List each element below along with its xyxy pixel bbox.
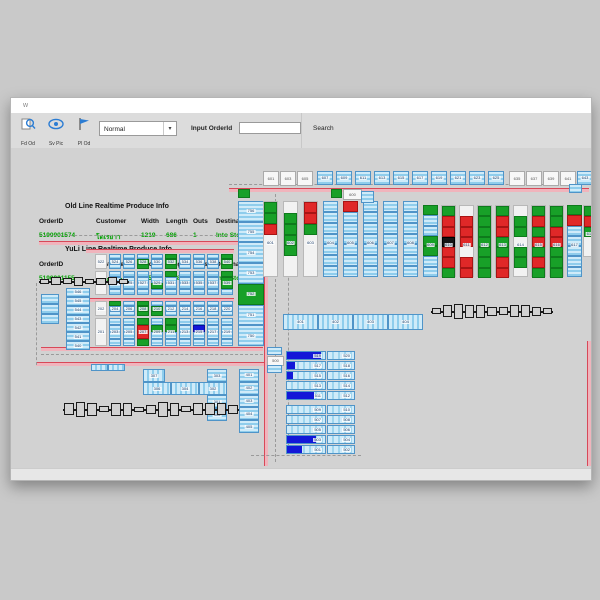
lane-left-label: 503 [313,438,322,442]
rack-cell [343,255,358,266]
lane-left-label: 505 [313,428,322,432]
machine-drawing [431,301,553,321]
rack-cell [137,289,149,295]
station-box: 611 [355,171,371,185]
machine-segment [74,277,83,286]
rack-cell [383,244,398,255]
bank-column: 530 [151,254,163,269]
rack-cell [151,264,163,269]
strip-cell: 541 [66,332,90,341]
rack-cell [567,215,582,225]
bank-column-label: 212 [167,307,176,311]
rack-cell [207,311,219,316]
lane-left-cell: 513 [286,381,326,390]
machine-segment [123,403,133,416]
factory-map: 6016036056076096116136156176196216236256… [11,148,591,468]
lane-right-label: 516 [342,374,351,378]
bank-column-label: 210 [153,307,162,311]
rack-cell [179,264,191,269]
rack-column: 603 [303,201,318,277]
lane-left-label: 513 [313,384,322,388]
strip-cell: 404 [388,314,423,330]
search-button[interactable]: Search [313,125,334,132]
map-area: Old Line Realtime Produce Info OrderID C… [11,148,591,468]
lane-left-cell: 503 [286,435,326,444]
rack-cell [532,206,545,216]
rack-cell [514,257,527,267]
machine-segment [85,279,94,284]
machine-segment [205,403,215,415]
bank-column: 216 [193,301,205,316]
rack-cell [165,289,177,295]
rack-strip: 401402403404 [283,314,423,330]
strip-cell-label: 302 [209,387,218,391]
lane-row: 519520 [286,351,355,360]
bank-column-label: 539 [223,281,232,285]
mode-select[interactable]: Normal ▾ [99,121,177,136]
lane-right-cell: 516 [327,371,355,380]
bank-column-label: 528 [139,260,148,264]
rack-cell-label: 752 [247,292,256,296]
rack-cell [221,339,233,346]
machine-segment [119,279,128,284]
station-box: 619 [431,171,447,185]
zone-dashed-line [39,235,263,236]
bank-column: 217 [207,318,219,346]
rack-cell [343,266,358,277]
machine-segment [181,406,191,412]
mode-select-value: Normal [104,126,125,133]
rack-cell [442,247,455,257]
machine-segment [134,407,144,412]
find-order-icon [20,117,36,131]
rack-cell [264,224,277,235]
bank-column: 201 [95,318,107,346]
strip-cell-label: 401 [296,320,305,324]
bank-column-label: 208 [139,307,148,311]
strip-cell [41,294,59,304]
rack-cell [304,224,317,235]
rack-strip: 307 [143,369,165,382]
rack-cell [193,264,205,269]
lane-right-cell: 514 [327,381,355,390]
station-box-label: 609 [340,176,349,180]
strip-cell [41,304,59,314]
save-pic-button[interactable]: Sv Pic [43,116,69,144]
rack-cell [478,268,491,278]
machine-segment [76,402,86,417]
machine-segment [111,403,121,416]
rack-cell: 753 [238,263,264,284]
station-box: 609 [336,171,352,185]
strip-cell: 403 [239,395,259,408]
bank-column-label: 206 [125,307,134,311]
rack-cell [383,266,398,277]
rack-cell-label: 754 [247,251,256,255]
rack-column: 614 [513,205,528,277]
lane-fill-bar [287,436,316,443]
machine-segment [454,304,463,319]
rack-cell [423,256,438,266]
rack-cell [323,255,338,266]
eye-icon [48,117,64,131]
rack-cell [363,255,378,266]
rack-cell: 750 [238,325,264,346]
rack-cell [532,227,545,237]
rack-cell-label: 750 [247,334,256,338]
strip-cell: 544 [66,306,90,315]
lane-right-cell: 510 [327,405,355,414]
rack-cell [550,216,563,226]
rack-cell [193,311,205,316]
strip-cell: 402 [239,382,259,395]
lane-fill-bar [287,446,302,453]
rack-cell [478,257,491,267]
lane-right-label: 510 [342,408,351,412]
station-box: 615 [393,171,409,185]
bank-column-label: 203 [111,330,120,334]
rack-cell [460,216,473,226]
lane-fill-bar [287,372,293,379]
bank-column: 526 [123,254,135,269]
rack-column: 609 [423,205,438,277]
strip-cell [91,364,108,371]
rack-cell [343,244,358,255]
rack-column-label: 603 [306,241,315,245]
rack-cell [323,244,338,255]
rack-cell [532,268,545,278]
conveyor-line [229,188,589,192]
bank-column: 212 [165,301,177,316]
rack-column-label: 606 [366,241,375,245]
rack-cell [567,226,582,236]
station-box: 601 [263,171,279,186]
bank-column: 206 [123,301,135,316]
bank-column: 536 [193,254,205,269]
strip-cell: 306 [143,382,171,395]
rack-column-label: 610 [444,243,453,247]
rack-cell [550,227,563,237]
rack-cell [123,264,135,269]
machine-segment [64,403,74,415]
rack-strip: 401402403404405 [239,369,259,433]
station-box-label: 611 [359,176,367,180]
rack-cell [323,266,338,277]
rack-cell [567,205,582,215]
zone-dashed-line [251,455,361,456]
bank-column: 533 [179,271,191,295]
lane-row: 511512 [286,391,355,400]
strip-cell-label: 405 [245,425,254,429]
strip-cell-label: 403 [245,399,254,403]
bank-column: 202 [95,301,107,316]
toolbar: Fd Od Sv Pic Pl Od Normal ▾ Input OrderI… [11,113,591,149]
machine-segment [217,403,227,415]
chevron-down-icon: ▾ [163,122,176,135]
conveyor-line [36,362,264,366]
lane-left-label: 509 [313,408,322,412]
bank-column: 204 [109,301,121,316]
rack-column-label: 616 [552,243,561,247]
machine-segment [51,277,60,285]
lane-right-label: 514 [342,384,351,388]
rack-column: 601 [263,201,278,277]
machine-segment [443,305,452,317]
plan-order-button[interactable]: Pl Od [71,116,97,144]
lane-row: 517518 [286,361,355,370]
rack-cell [264,213,277,224]
lane-right-cell: 504 [327,435,355,444]
bank-column-label: 535 [195,281,204,285]
bank-column: 539 [221,271,233,295]
bank-column-label: 218 [209,307,218,311]
rack-column-label: 615 [534,243,543,247]
rack-cell [343,212,358,223]
strip-cell: 307 [143,369,165,382]
strip-cell: 542 [66,323,90,332]
rack-cell [165,318,177,325]
rack-cell [179,311,191,316]
rack-column-label: 605 [346,241,355,245]
machine-segment [63,278,72,284]
bank-column-label: 207 [139,330,148,334]
station-box: 637 [526,171,542,186]
rack-column: 616 [549,205,564,277]
bank-column: 532 [165,254,177,269]
strip-cell-label: 404 [245,412,254,416]
junction-box [238,189,250,198]
lane-row: 507508 [286,415,355,424]
rack-cell [478,247,491,257]
bank-column: 531 [165,271,177,295]
bank-column: 524 [109,254,121,269]
machine-segment [499,307,508,315]
bank-column-label: 527 [139,281,148,285]
rack-strip: 303 [207,369,227,382]
lane-right-cell: 508 [327,415,355,424]
bank-column: 535 [193,271,205,295]
rack-cell [423,215,438,225]
rack-cell: 754 [238,242,264,263]
rack-cell [165,339,177,346]
lane-right-label: 520 [342,354,351,358]
bank-column: 207 [137,318,149,346]
bank-column: 210 [151,301,163,316]
lane-right-label: 504 [342,438,351,442]
strip-cell-label: 401 [245,373,254,377]
strip-cell: 302 [199,382,227,395]
machine-segment [465,305,474,318]
rack-cell [383,223,398,234]
bank-column: 219 [221,318,233,346]
lane-row: 515516 [286,371,355,380]
lane-left-label: 507 [313,418,322,422]
rack-cell [151,339,163,346]
rack-column-label: 618 [586,232,591,236]
station-box: 625 [488,171,504,185]
rack-cell [137,264,149,269]
junction-box [361,191,374,203]
rack-cell [532,257,545,267]
lane-right-cell: 512 [327,391,355,400]
window-title: w [23,102,28,109]
rack-cell [383,255,398,266]
rack-cell [567,246,582,256]
junction-box [267,347,282,355]
bank-column-label: 531 [167,281,176,285]
rack-column: 618 [583,205,591,257]
rack-cell [383,201,398,212]
bank-column-label: 213 [181,330,190,334]
station-box-label: 643 [581,176,590,180]
rack-strip: 306304302 [143,382,227,395]
strip-cell: 304 [171,382,199,395]
rack-column: 617 [567,205,582,277]
station-box: 607 [317,171,333,185]
rack-cell [532,216,545,226]
rack-column-label: 608 [406,241,415,245]
machine-segment [146,405,156,414]
rack-cell-label: 756 [247,209,256,213]
rack-cell-label: 751 [247,313,256,317]
rack-cell [221,264,233,269]
rack-cell [403,223,418,234]
rack-cell-label: 755 [247,230,256,234]
strip-cell: 401 [239,369,259,382]
rack-column: 606 [363,201,378,277]
bank-column-label: 533 [181,281,190,285]
bank-column-label: 216 [195,307,204,311]
lane-left-cell: 507 [286,415,326,424]
bank-column-label: 219 [223,330,232,334]
strip-cell-label: 303 [213,374,222,378]
rack-cell [423,267,438,277]
station-box-label: 617 [416,176,425,180]
conveyor-line [86,249,234,253]
rack-strip [41,294,59,324]
bank-column: 213 [179,318,191,346]
rack-cell [151,311,163,316]
rack-cell [496,227,509,237]
lane-left-label: 519 [313,354,322,358]
lane-left-label: 511 [314,394,322,398]
bank-column-label: 205 [125,330,134,334]
rack-cell [304,202,317,213]
rack-cell [221,311,233,316]
plan-order-label: Pl Od [78,141,91,147]
bank-column: 203 [109,318,121,346]
strip-cell-label: 540 [74,344,83,348]
order-id-input[interactable] [239,122,301,134]
machine-segment [40,279,49,284]
bank-column-label: 220 [223,307,232,311]
station-box: 643 [577,171,591,185]
junction-box [331,189,342,198]
app-window: w Fd Od Sv Pic Pl Od [10,97,592,481]
machine-segment [158,402,168,417]
rack-cell [264,202,277,213]
rack-cell [151,318,163,325]
bank-column-label: 530 [153,260,162,264]
rack-cell [460,257,473,267]
rack-cell [403,201,418,212]
rack-cell [383,212,398,223]
strip-cell-label: 306 [153,387,162,391]
rack-cell [284,245,297,256]
lane-right-label: 506 [342,428,351,432]
bank-column-label: 214 [181,307,190,311]
rack-cell [403,266,418,277]
machine-segment [487,307,496,316]
rack-cell [179,289,191,295]
rack-cell [207,318,219,325]
rack-cell: 755 [238,222,264,243]
find-order-label: Fd Od [21,141,35,147]
status-footer [11,468,591,480]
bank-column: 527 [137,271,149,295]
rack-column: 605 [343,201,358,277]
rack-column: 611 [459,205,474,277]
machine-segment [99,406,109,412]
rack-column-label: 604 [326,241,335,245]
station-box: 623 [469,171,485,185]
strip-cell-label: 307 [150,374,159,378]
rack-cell [123,318,135,325]
rack-cell [403,244,418,255]
machine-segment [510,305,519,317]
lane-left-cell: 509 [286,405,326,414]
rack-cell [363,223,378,234]
strip-cell: 403 [353,314,388,330]
bank-column: 215 [193,318,205,346]
junction-box [267,365,282,373]
rack-cell [137,311,149,316]
lane-right-label: 518 [342,364,351,368]
lane-right-cell: 506 [327,425,355,434]
strip-cell-label: 543 [74,317,83,321]
rack-cell [496,247,509,257]
zone-dashed-line [41,354,263,355]
rack-cell [460,227,473,237]
find-order-button[interactable]: Fd Od [15,116,41,144]
lane-left-cell: 515 [286,371,326,380]
lane-right-cell: 520 [327,351,355,360]
strip-cell-label: 541 [74,335,83,339]
machine-segment [108,277,117,285]
strip-cell: 540 [66,341,90,350]
rack-column-label: 612 [480,243,489,247]
rack-cell [478,216,491,226]
rack-cell [207,339,219,346]
machine-drawing [63,398,239,420]
bank-column-label: 534 [181,260,190,264]
rack-cell [165,311,177,316]
machine-segment [228,405,238,414]
machine-segment [87,403,97,416]
machine-segment [96,278,105,285]
bank-column: 529 [151,271,163,295]
rack-cell [460,268,473,278]
station-box: 621 [450,171,466,185]
rack-cell [423,246,438,256]
bank-column-label: 540 [223,260,232,264]
rack-cell [496,216,509,226]
machine-segment [476,305,485,318]
lane-left-cell: 511 [286,391,326,400]
bank-column: 205 [123,318,135,346]
strip-cell-label: 544 [74,308,83,312]
junction-box [569,184,582,193]
